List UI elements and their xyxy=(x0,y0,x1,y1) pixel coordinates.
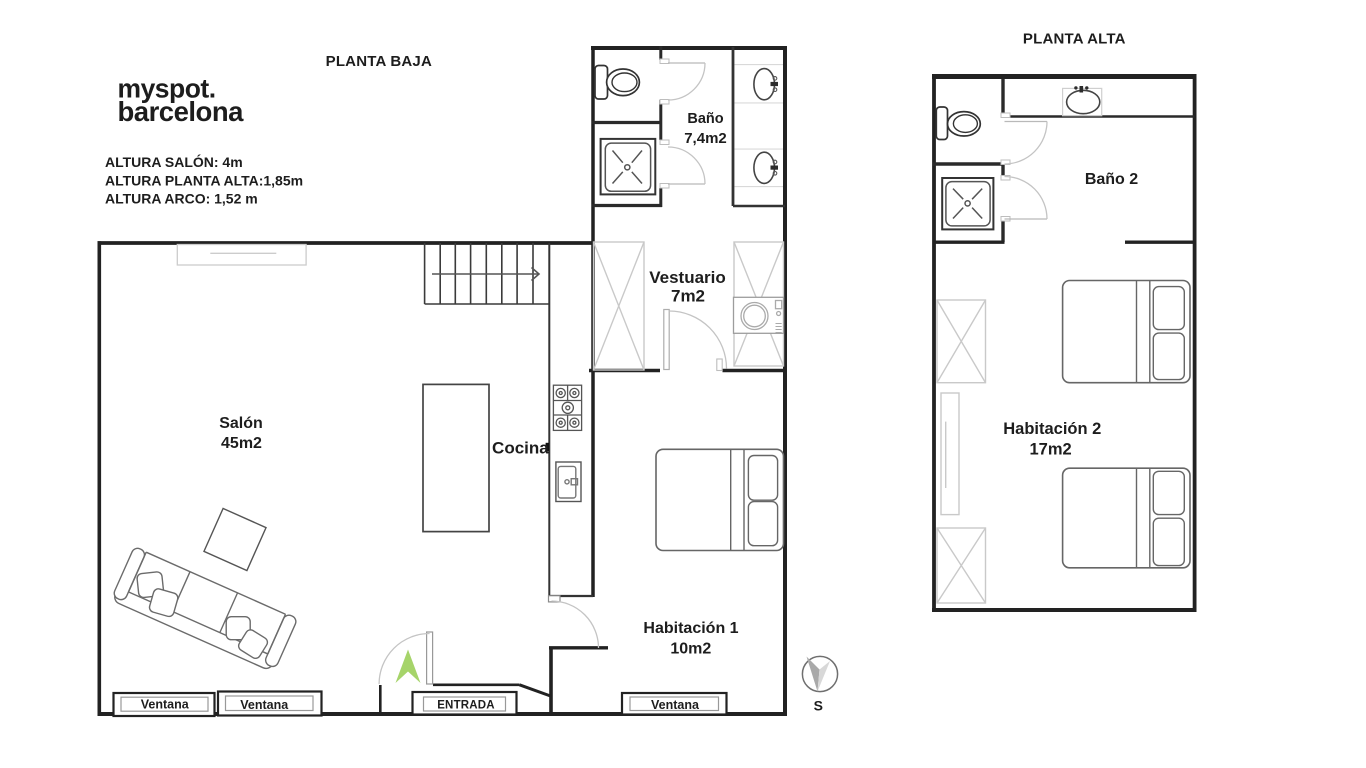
svg-text:ALTURA SALÓN: 4m: ALTURA SALÓN: 4m xyxy=(105,153,243,170)
svg-text:Ventana: Ventana xyxy=(240,698,289,712)
svg-text:Ventana: Ventana xyxy=(141,697,190,711)
svg-text:7m2: 7m2 xyxy=(671,287,705,306)
svg-text:45m2: 45m2 xyxy=(221,435,262,452)
svg-text:Baño: Baño xyxy=(687,111,723,127)
svg-text:Ventana: Ventana xyxy=(651,698,700,712)
svg-text:Vestuario: Vestuario xyxy=(649,268,726,287)
svg-text:S: S xyxy=(814,698,823,714)
svg-text:ALTURA PLANTA ALTA:1,85m: ALTURA PLANTA ALTA:1,85m xyxy=(105,172,303,188)
svg-text:PLANTA BAJA: PLANTA BAJA xyxy=(326,53,432,70)
svg-text:PLANTA ALTA: PLANTA ALTA xyxy=(1023,31,1126,48)
svg-text:Cocina: Cocina xyxy=(492,439,549,458)
svg-text:Baño 2: Baño 2 xyxy=(1085,171,1138,188)
svg-text:Salón: Salón xyxy=(219,415,263,432)
svg-text:ENTRADA: ENTRADA xyxy=(437,700,495,712)
svg-text:10m2: 10m2 xyxy=(670,641,711,658)
svg-text:17m2: 17m2 xyxy=(1029,440,1071,458)
svg-text:7,4m2: 7,4m2 xyxy=(684,130,727,147)
svg-text:Habitación 2: Habitación 2 xyxy=(1003,420,1101,438)
svg-text:Habitación 1: Habitación 1 xyxy=(643,620,738,637)
svg-text:barcelona: barcelona xyxy=(118,96,245,127)
svg-text:ALTURA ARCO: 1,52 m: ALTURA ARCO: 1,52 m xyxy=(105,191,258,207)
